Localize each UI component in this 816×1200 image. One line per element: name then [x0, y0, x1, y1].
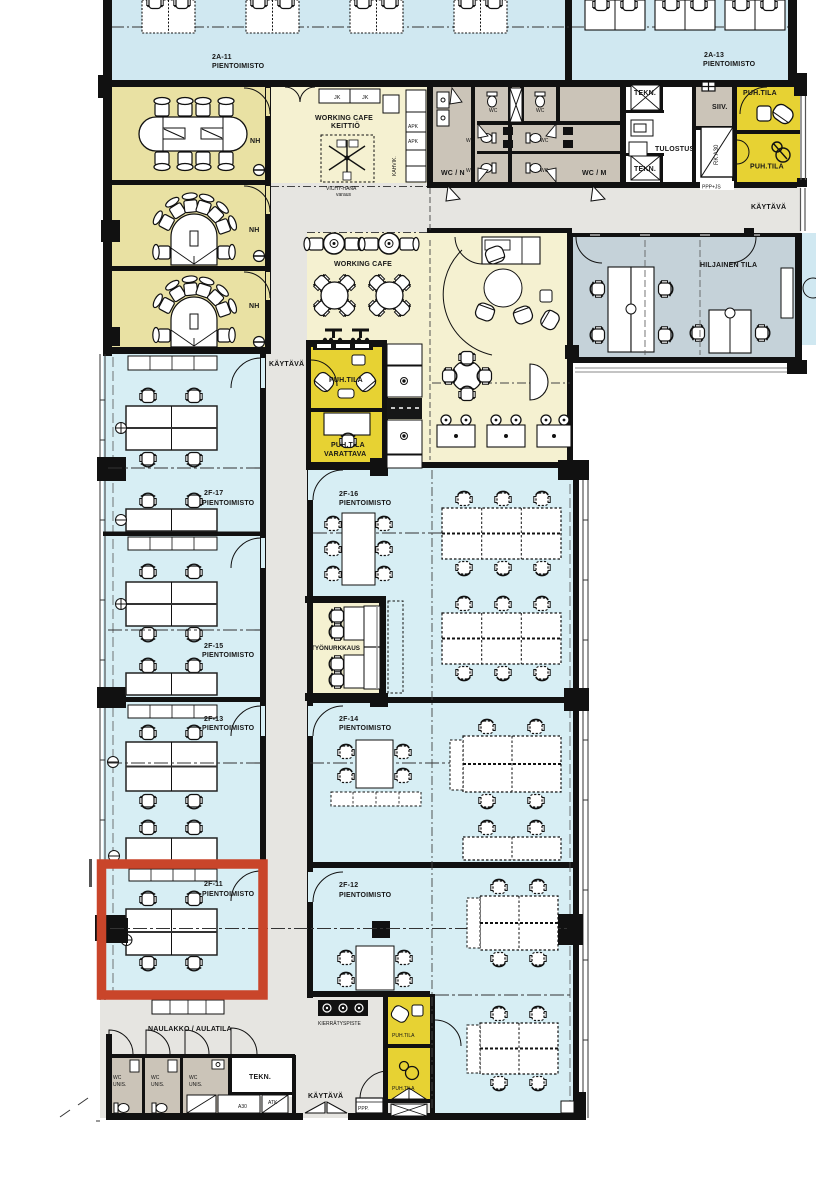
svg-text:WC: WC [489, 108, 498, 114]
svg-text:PUH.TILA: PUH.TILA [331, 442, 365, 449]
svg-text:A30: A30 [238, 1104, 247, 1110]
svg-text:UNIS.: UNIS. [151, 1082, 164, 1088]
svg-text:NH: NH [250, 138, 261, 145]
svg-text:PUH.TILA: PUH.TILA [750, 164, 784, 171]
svg-text:PIENTOIMISTO: PIENTOIMISTO [202, 500, 255, 507]
svg-text:WC: WC [540, 168, 549, 174]
svg-text:KEITTIÖ: KEITTIÖ [331, 121, 360, 130]
svg-text:TEKN.: TEKN. [249, 1074, 271, 1081]
svg-text:HILJAINEN TILA: HILJAINEN TILA [700, 262, 757, 269]
svg-text:SIIV.: SIIV. [712, 104, 728, 111]
svg-text:WORKING CAFE: WORKING CAFE [334, 261, 392, 268]
svg-text:PIENTOIMISTO: PIENTOIMISTO [339, 725, 392, 732]
svg-text:TEKN.: TEKN. [634, 90, 656, 97]
svg-text:TULOSTUS: TULOSTUS [655, 146, 694, 153]
svg-text:RK A30: RK A30 [714, 144, 720, 165]
svg-text:PIENTOIMISTO: PIENTOIMISTO [339, 500, 392, 507]
svg-text:UNIS.: UNIS. [113, 1082, 126, 1088]
svg-text:KIERRÄTYSPISTE: KIERRÄTYSPISTE [318, 1020, 361, 1027]
svg-text:APK: APK [408, 124, 419, 130]
svg-text:JK: JK [362, 95, 369, 101]
svg-text:KÄYTÄVÄ: KÄYTÄVÄ [269, 360, 304, 368]
svg-text:NH: NH [249, 303, 260, 310]
svg-text:WC / M: WC / M [582, 170, 607, 177]
svg-text:WC: WC [189, 1075, 198, 1081]
svg-text:VARATTAVA: VARATTAVA [324, 451, 366, 458]
svg-text:KÄYTÄVÄ: KÄYTÄVÄ [308, 1092, 343, 1100]
svg-text:PIENTOIMISTO: PIENTOIMISTO [202, 725, 255, 732]
svg-text:WC: WC [536, 108, 545, 114]
svg-text:PIENTOIMISTO: PIENTOIMISTO [339, 892, 392, 899]
svg-text:PIENTOIMISTO: PIENTOIMISTO [212, 63, 265, 70]
svg-text:2F-14: 2F-14 [339, 716, 358, 723]
svg-text:KÄYTÄVÄ: KÄYTÄVÄ [751, 203, 786, 211]
svg-text:PPP.: PPP. [358, 1106, 369, 1112]
svg-text:WC: WC [540, 138, 549, 144]
svg-text:TEKN.: TEKN. [634, 166, 656, 173]
svg-text:TYÖNURKKAUS: TYÖNURKKAUS [311, 643, 360, 652]
svg-text:JK: JK [334, 95, 341, 101]
svg-text:WORKING CAFE: WORKING CAFE [315, 115, 373, 122]
svg-text:ATK: ATK [268, 1100, 278, 1106]
svg-text:PPP+JS: PPP+JS [702, 185, 721, 191]
svg-text:2F-12: 2F-12 [339, 882, 358, 889]
svg-text:2F-13: 2F-13 [204, 716, 223, 723]
svg-text:PIENTOIMISTO: PIENTOIMISTO [202, 891, 255, 898]
svg-text:WC: WC [466, 168, 475, 174]
svg-text:WC: WC [151, 1075, 160, 1081]
svg-text:PUH.TILA: PUH.TILA [329, 377, 363, 384]
svg-text:PUH.TILA: PUH.TILA [392, 1033, 415, 1039]
svg-text:varaus: varaus [336, 192, 352, 198]
svg-text:KAHVIK.: KAHVIK. [392, 156, 398, 176]
svg-text:APK: APK [408, 139, 419, 145]
svg-text:WC: WC [466, 138, 475, 144]
svg-text:PUH.TILA: PUH.TILA [743, 90, 777, 97]
svg-text:WC / N: WC / N [441, 170, 465, 177]
svg-text:2A-13: 2A-13 [704, 52, 724, 59]
svg-text:NAULAKKO / AULATILA: NAULAKKO / AULATILA [148, 1026, 232, 1033]
svg-text:2F-17: 2F-17 [204, 490, 223, 497]
svg-text:WC: WC [113, 1075, 122, 1081]
svg-text:2F-11: 2F-11 [204, 881, 223, 888]
svg-text:2F-15: 2F-15 [204, 643, 223, 650]
svg-text:2A-11: 2A-11 [212, 54, 232, 61]
svg-text:PIENTOIMISTO: PIENTOIMISTO [202, 652, 255, 659]
svg-text:2F-16: 2F-16 [339, 491, 358, 498]
svg-text:PUH.TILA: PUH.TILA [392, 1086, 415, 1092]
svg-text:UNIS.: UNIS. [189, 1082, 202, 1088]
svg-text:PIENTOIMISTO: PIENTOIMISTO [703, 61, 756, 68]
svg-text:NH: NH [249, 227, 260, 234]
